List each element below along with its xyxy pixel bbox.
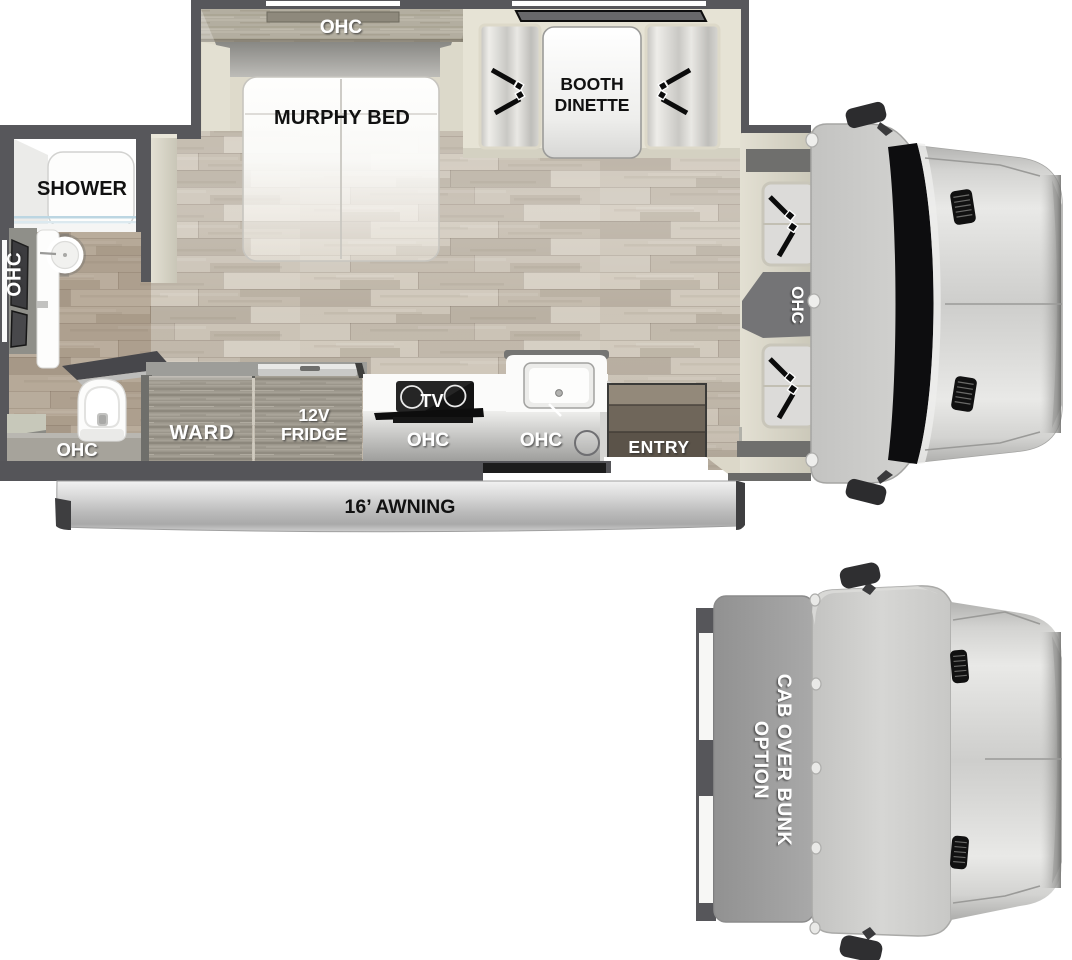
svg-text:12V: 12V [298,405,329,425]
svg-text:OHC: OHC [320,17,363,38]
svg-text:SHOWER: SHOWER [37,178,128,200]
svg-text:MURPHY BED: MURPHY BED [274,107,410,129]
svg-text:OHC: OHC [520,430,563,451]
svg-text:OHC: OHC [407,430,450,451]
svg-text:FRIDGE: FRIDGE [281,424,347,444]
svg-text:TV: TV [420,391,443,411]
svg-text:16’ AWNING: 16’ AWNING [345,496,456,518]
svg-text:OHC: OHC [788,286,807,324]
svg-text:BOOTH: BOOTH [560,74,623,94]
svg-text:OHC: OHC [5,251,26,296]
svg-text:CAB OVER BUNK: CAB OVER BUNK [773,674,795,846]
svg-text:DINETTE: DINETTE [555,95,630,115]
svg-text:ENTRY: ENTRY [628,437,689,457]
svg-text:OHC: OHC [56,439,97,460]
svg-text:WARD: WARD [169,422,234,444]
svg-text:OPTION: OPTION [750,721,772,799]
